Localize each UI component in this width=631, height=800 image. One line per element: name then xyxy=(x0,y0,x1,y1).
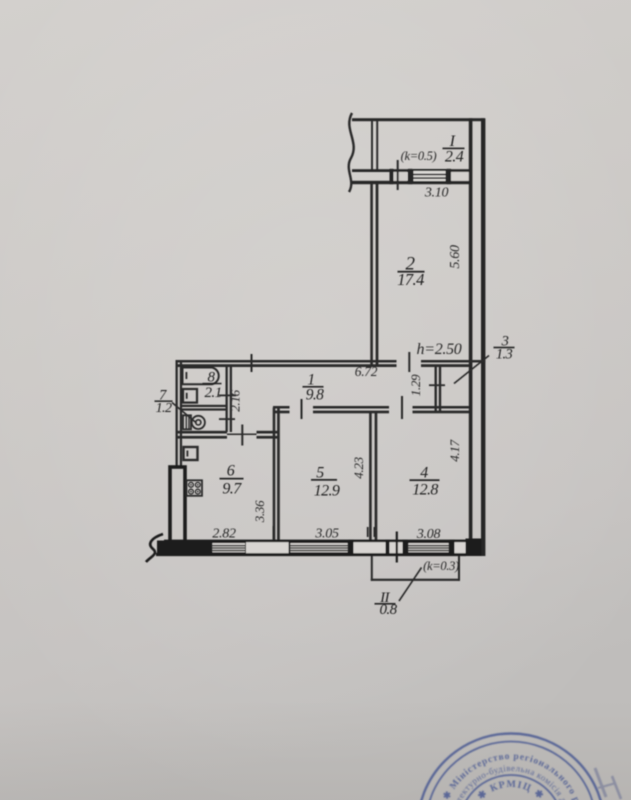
svg-text:6: 6 xyxy=(227,463,235,480)
svg-text:3.10: 3.10 xyxy=(424,186,449,201)
svg-text:1.3: 1.3 xyxy=(496,347,513,363)
svg-text:1.2: 1.2 xyxy=(156,401,172,416)
svg-text:9.7: 9.7 xyxy=(222,481,242,498)
svg-text:6.72: 6.72 xyxy=(355,364,378,379)
svg-text:(k=0.5): (k=0.5) xyxy=(401,149,437,163)
svg-text:9.8: 9.8 xyxy=(306,387,324,404)
svg-text:0.8: 0.8 xyxy=(380,602,398,618)
svg-text:4: 4 xyxy=(420,465,428,482)
svg-text:1.29: 1.29 xyxy=(408,374,423,396)
svg-text:4.17: 4.17 xyxy=(447,439,462,461)
svg-text:17.4: 17.4 xyxy=(397,270,424,289)
svg-text:5: 5 xyxy=(316,465,324,482)
svg-text:2.82: 2.82 xyxy=(212,527,236,542)
svg-text:12.9: 12.9 xyxy=(314,483,340,500)
svg-text:12.8: 12.8 xyxy=(412,482,438,499)
svg-text:2.4: 2.4 xyxy=(445,149,464,166)
svg-text:3.05: 3.05 xyxy=(314,527,339,542)
svg-text:4.23: 4.23 xyxy=(351,456,366,478)
svg-text:2.1: 2.1 xyxy=(205,385,222,401)
svg-text:3.36: 3.36 xyxy=(252,500,267,523)
svg-text:5.60: 5.60 xyxy=(448,245,463,269)
svg-text:(k=0.3): (k=0.3) xyxy=(423,559,459,573)
svg-text:2.16: 2.16 xyxy=(228,389,243,411)
svg-text:h=2.50: h=2.50 xyxy=(417,341,462,358)
